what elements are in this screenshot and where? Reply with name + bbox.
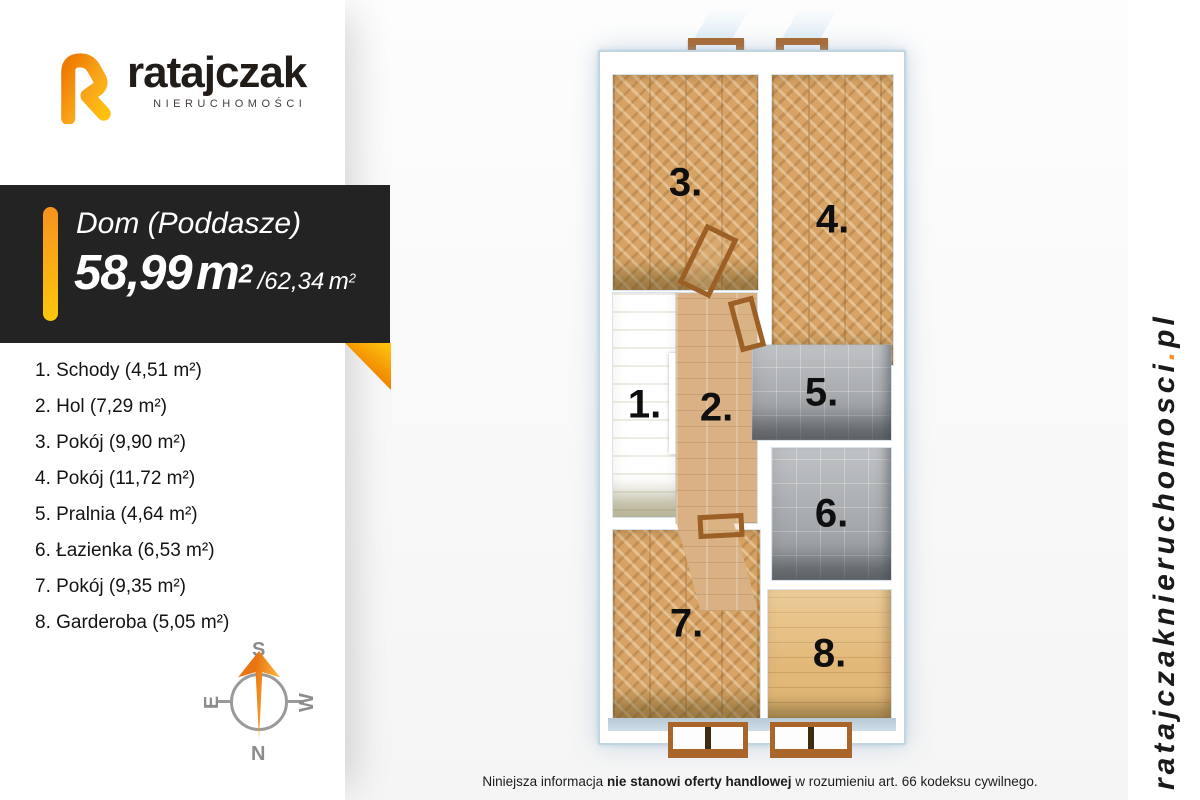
ribbon-fold [345,343,391,390]
property-title: Dom (Poddasze) [76,207,301,241]
area-main-value: 58,99 [74,246,192,300]
logo-subtitle: NIERUCHOMOŚCI [153,98,306,110]
area-alt-unit: m [329,268,349,295]
url-domain: ratajczaknieruchomosci [1148,360,1181,790]
legend-item-3: 3. Pokój (9,90 m²) [35,432,229,468]
disclaimer-post: w rozumieniu art. 66 kodeksu cywilnego. [791,774,1037,789]
room-number: 2. [700,386,733,431]
legend-item-1: 1. Schody (4,51 m²) [35,360,229,396]
website-url: ratajczaknieruchomosci.pl [1148,313,1182,790]
compass-rose: S N E W [204,637,316,769]
window-icon [770,722,852,758]
legend-item-5: 5. Pralnia (4,64 m²) [35,504,229,540]
flyer-canvas: 3. 4. 1. 2. 5. 6. 7. 8. [0,0,1200,800]
compass-west-label: W [296,693,319,712]
logo-wordmark: ratajczak [127,50,306,96]
room-legend: 1. Schody (4,51 m²) 2. Hol (7,29 m²) 3. … [35,360,229,648]
room-4-pokoj: 4. [772,75,893,365]
room-number: 8. [813,632,846,677]
url-dot: . [1148,348,1181,360]
legend-item-4: 4. Pokój (11,72 m²) [35,468,229,504]
open-door-icon [697,513,744,539]
area-alt-value: /62,34 [258,268,325,295]
room-number: 3. [669,160,702,205]
room-number: 1. [628,383,661,428]
bottom-wall-face [608,718,896,731]
room-number: 6. [815,492,848,537]
legend-item-2: 2. Hol (7,29 m²) [35,396,229,432]
area-main-unit: m [196,246,239,300]
legal-disclaimer: Niniejsza informacja nie stanowi oferty … [405,774,1115,789]
disclaimer-bold: nie stanowi oferty handlowej [607,774,792,789]
logo: ratajczak NIERUCHOMOŚCI [55,50,306,124]
area-alt-sup: 2 [349,271,356,286]
room-3-pokoj: 3. [613,75,758,290]
legend-item-8: 8. Garderoba (5,05 m²) [35,612,229,648]
room-6-lazienka: 6. [772,448,891,580]
disclaimer-pre: Niniejsza informacja [482,774,607,789]
area-figures: 58,99 m2 /62,34 m2 [74,245,356,301]
logo-text-block: ratajczak NIERUCHOMOŚCI [127,50,306,110]
info-panel: ratajczak NIERUCHOMOŚCI 1. Schody (4,51 … [0,0,345,800]
compass-east-label: E [201,696,224,709]
url-tld: pl [1148,313,1181,348]
floor-plan: 3. 4. 1. 2. 5. 6. 7. 8. [598,28,908,754]
room-8-garderoba: 8. [768,590,891,718]
room-1-schody: 1. [613,293,676,517]
room-number: 4. [816,198,849,243]
legend-item-6: 6. Łazienka (6,53 m²) [35,540,229,576]
compass-north-label: N [251,743,265,766]
room-number: 5. [805,370,838,415]
room-number: 7. [670,602,703,647]
title-banner: Dom (Poddasze) 58,99 m2 /62,34 m2 [0,185,390,343]
window-icon [668,722,748,758]
accent-bar [43,207,58,321]
ratajczak-logo-icon [55,50,117,124]
room-5-pralnia: 5. [752,345,891,440]
area-main-sup: 2 [239,259,253,289]
legend-item-7: 7. Pokój (9,35 m²) [35,576,229,612]
